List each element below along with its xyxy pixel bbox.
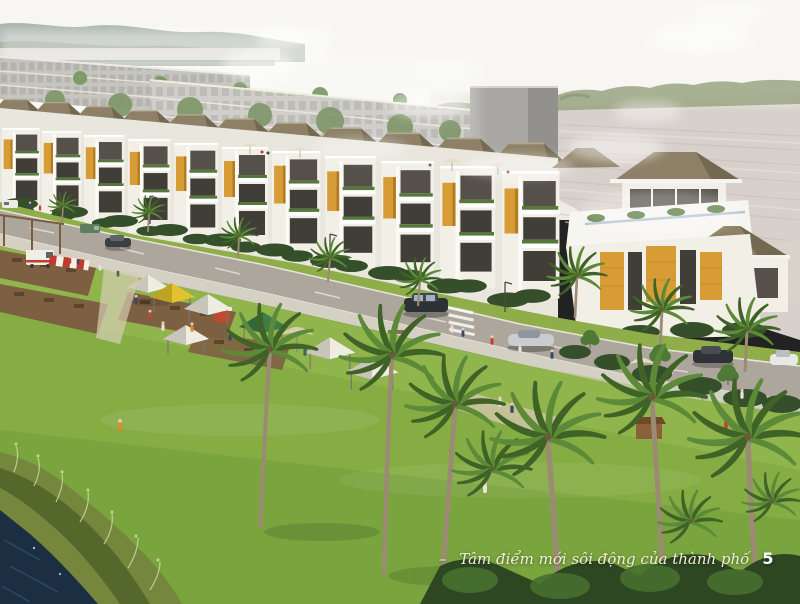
caption-text: Tâm điểm mới sôi động của thành phố <box>459 550 749 568</box>
brochure-page: – Tâm điểm mới sôi động của thành phố 5 <box>0 0 800 604</box>
caption-dash: – <box>439 550 447 568</box>
render-image <box>0 0 800 604</box>
car-van-white <box>2 200 18 208</box>
caption: – Tâm điểm mới sôi động của thành phố 5 <box>439 549 774 568</box>
car-van-green <box>80 224 100 233</box>
page-number: 5 <box>762 549 774 568</box>
